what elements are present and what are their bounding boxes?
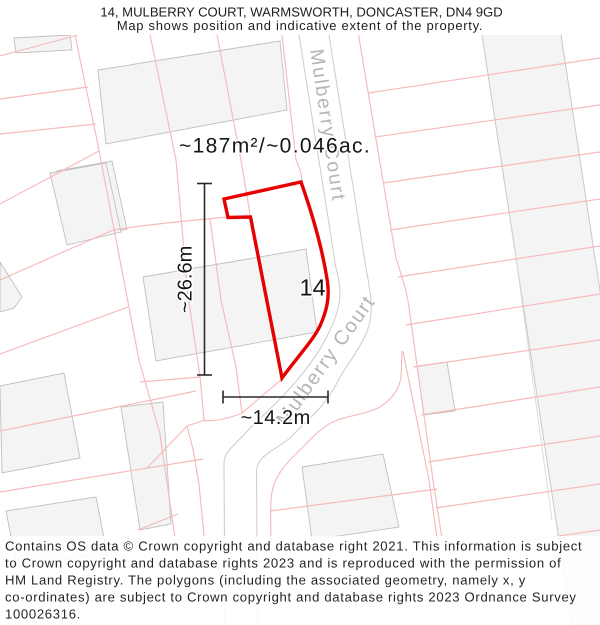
svg-text:co-ordinates) are subject to C: co-ordinates) are subject to Crown copyr…	[5, 590, 577, 605]
svg-text:~14.2m: ~14.2m	[241, 407, 311, 429]
svg-text:~26.6m: ~26.6m	[175, 246, 197, 313]
svg-text:HM Land Registry. The polygons: HM Land Registry. The polygons (includin…	[5, 573, 526, 588]
svg-text:Map shows position and indicat: Map shows position and indicative extent…	[117, 18, 483, 33]
svg-text:14: 14	[300, 275, 326, 301]
svg-text:~187m²/~0.046ac.: ~187m²/~0.046ac.	[179, 134, 371, 157]
svg-text:to Crown copyright and databas: to Crown copyright and database rights 2…	[5, 556, 561, 571]
svg-text:Contains OS data © Crown copyr: Contains OS data © Crown copyright and d…	[5, 539, 582, 554]
svg-text:100026316.: 100026316.	[5, 607, 81, 622]
